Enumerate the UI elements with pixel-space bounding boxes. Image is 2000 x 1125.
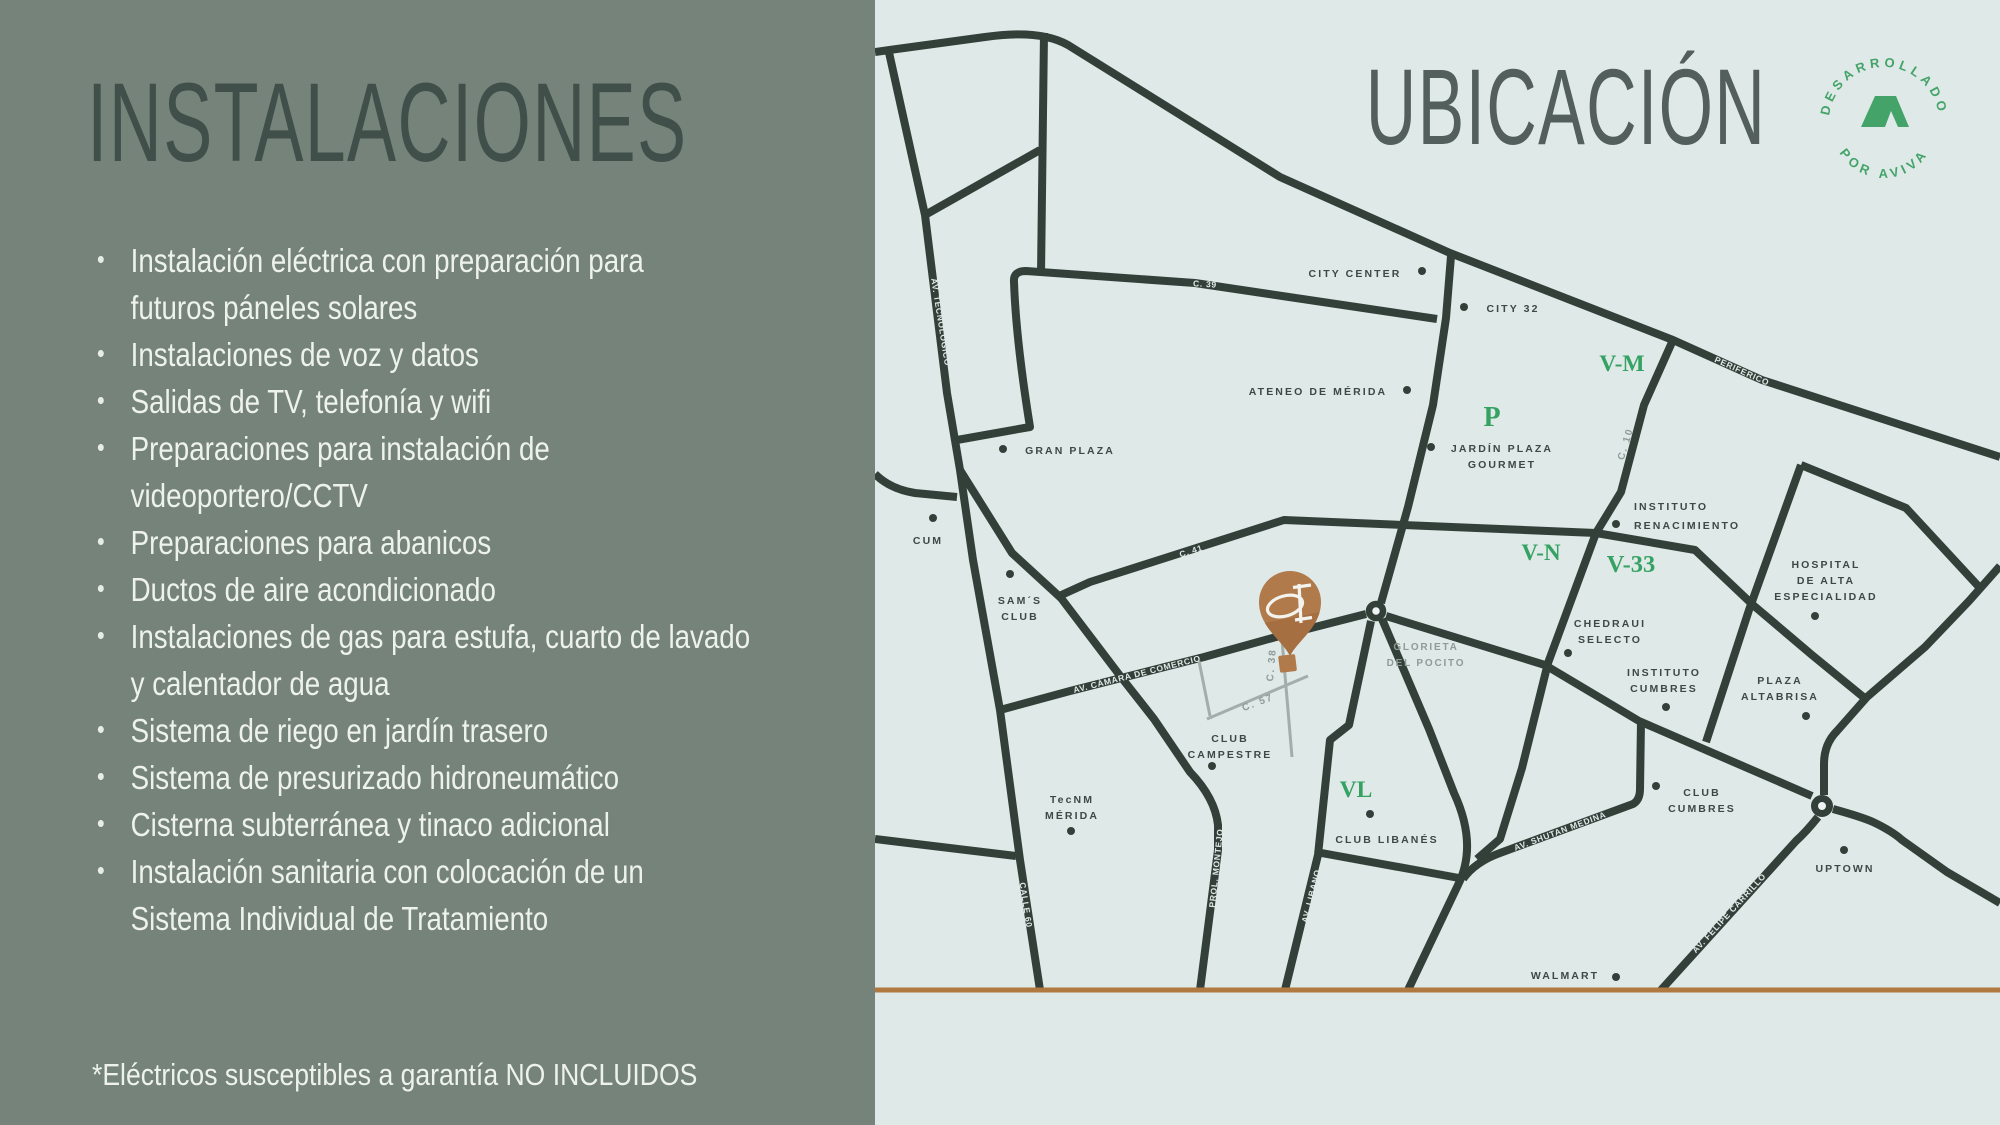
svg-text:VL: VL [1340, 777, 1373, 803]
svg-text:GOURMET: GOURMET [1468, 459, 1536, 471]
svg-text:DEL POCITO: DEL POCITO [1387, 658, 1466, 669]
svg-text:TecNM: TecNM [1050, 794, 1094, 806]
svg-text:P: P [1483, 402, 1500, 433]
svg-text:CHEDRAUI: CHEDRAUI [1574, 618, 1646, 630]
svg-text:SELECTO: SELECTO [1578, 634, 1642, 646]
svg-text:GLORIETA: GLORIETA [1393, 642, 1458, 653]
svg-text:MÉRIDA: MÉRIDA [1045, 809, 1099, 822]
svg-text:CLUB LIBANÉS: CLUB LIBANÉS [1335, 833, 1438, 846]
svg-text:ESPECIALIDAD: ESPECIALIDAD [1774, 591, 1877, 603]
svg-text:CUMBRES: CUMBRES [1668, 803, 1736, 815]
svg-text:INSTITUTO: INSTITUTO [1627, 667, 1701, 679]
svg-text:CITY CENTER: CITY CENTER [1309, 268, 1402, 280]
svg-text:CITY 32: CITY 32 [1486, 303, 1539, 315]
svg-text:CLUB: CLUB [1211, 733, 1249, 745]
svg-text:ATENEO DE MÉRIDA: ATENEO DE MÉRIDA [1249, 385, 1387, 398]
svg-text:ALTABRISA: ALTABRISA [1741, 691, 1819, 703]
svg-text:CAMPESTRE: CAMPESTRE [1188, 749, 1273, 761]
svg-text:PLAZA: PLAZA [1757, 675, 1803, 687]
svg-text:CUM: CUM [913, 535, 943, 547]
svg-text:RENACIMIENTO: RENACIMIENTO [1634, 520, 1740, 532]
svg-text:C. 39: C. 39 [1193, 278, 1217, 289]
svg-text:UBICACIÓN: UBICACIÓN [1366, 48, 1766, 168]
svg-text:HOSPITAL: HOSPITAL [1791, 559, 1860, 571]
svg-text:CLUB: CLUB [1001, 611, 1039, 623]
svg-text:WALMART: WALMART [1531, 970, 1599, 982]
svg-text:JARDÍN PLAZA: JARDÍN PLAZA [1451, 442, 1553, 455]
svg-text:DE ALTA: DE ALTA [1797, 575, 1855, 587]
svg-text:V-N: V-N [1521, 540, 1561, 565]
svg-text:GRAN PLAZA: GRAN PLAZA [1025, 445, 1115, 457]
svg-text:CLUB: CLUB [1683, 787, 1721, 799]
svg-text:UPTOWN: UPTOWN [1815, 863, 1874, 875]
svg-text:V-M: V-M [1599, 351, 1644, 377]
svg-text:INSTITUTO: INSTITUTO [1634, 501, 1708, 513]
svg-text:CUMBRES: CUMBRES [1630, 683, 1698, 695]
svg-text:SAM´S: SAM´S [998, 595, 1042, 607]
svg-text:V-33: V-33 [1607, 551, 1656, 578]
